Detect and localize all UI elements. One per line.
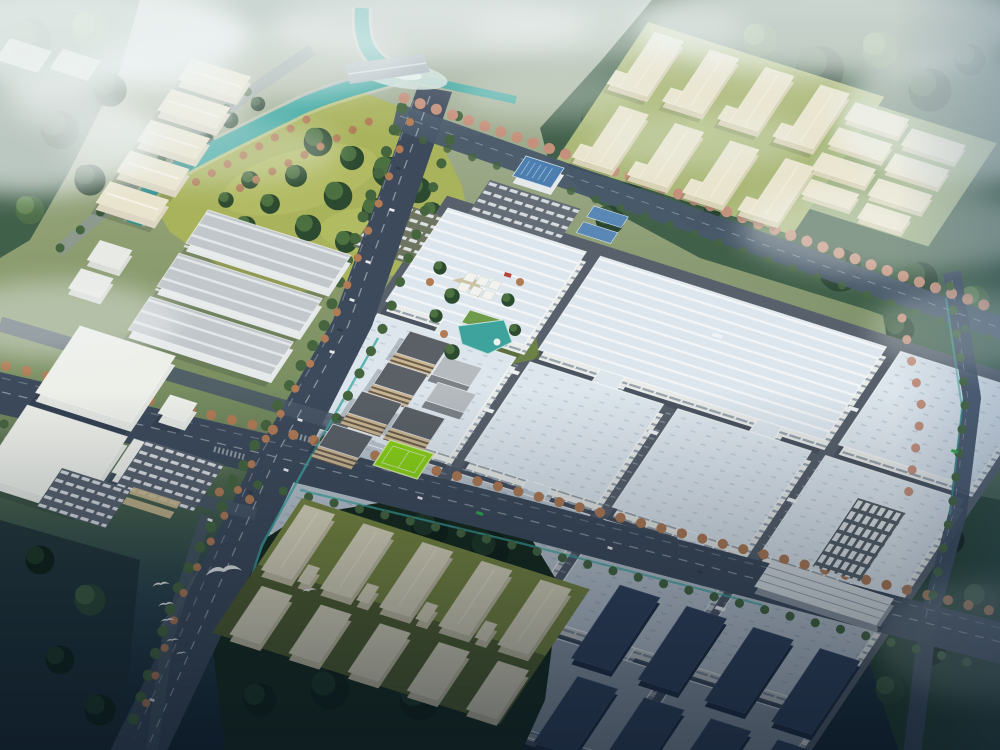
aerial-render-image: Aerial bird's-eye 3D architectural rende… [0, 0, 1000, 750]
scene-canvas: Aerial bird's-eye 3D architectural rende… [0, 0, 1000, 750]
bottom-vignette [0, 0, 1000, 750]
